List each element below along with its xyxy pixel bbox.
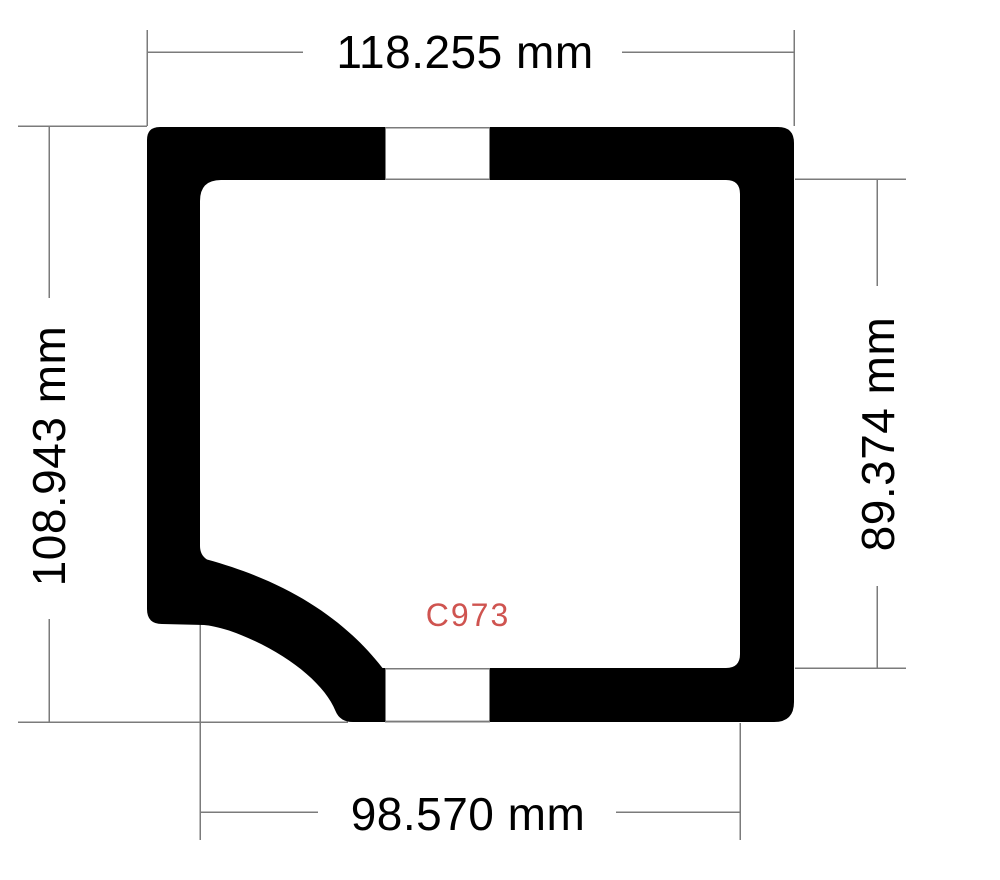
bottom-break-gap [386,669,490,721]
bottom-dimension-label: 98.570 mm [351,788,586,840]
drawing-canvas: 118.255 mm 108.943 mm 89.374 mm 98.570 m… [0,0,1000,880]
top-dimension-label: 118.255 mm [336,26,593,78]
left-dimension-label: 108.943 mm [23,326,75,587]
technical-drawing: 118.255 mm 108.943 mm 89.374 mm 98.570 m… [0,0,1000,880]
top-break-gap [386,128,490,179]
right-dimension-label: 89.374 mm [852,317,904,552]
part-number-label: C973 [426,597,511,633]
